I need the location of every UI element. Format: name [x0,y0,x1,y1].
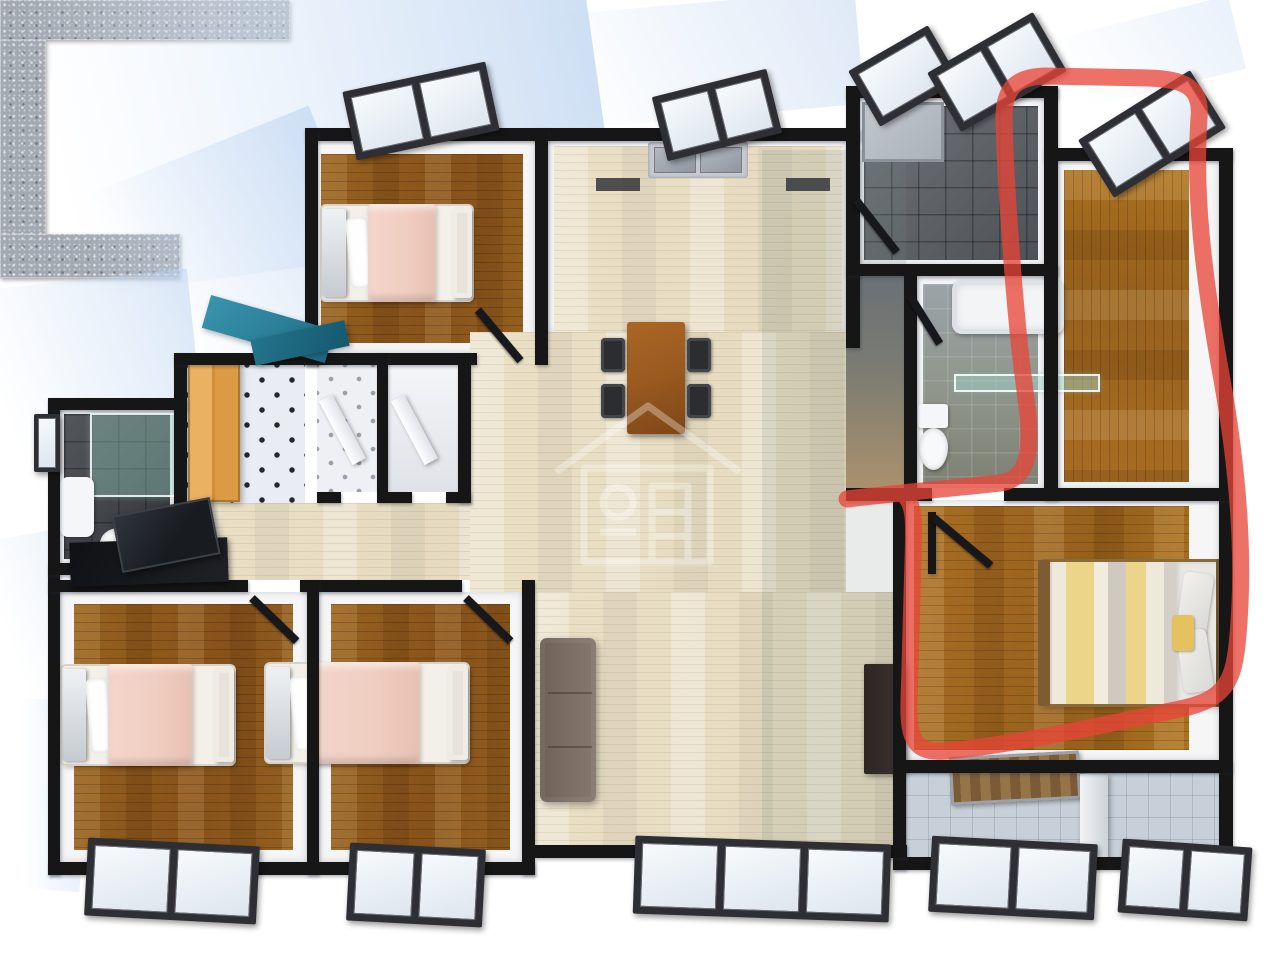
wall-segment [446,492,471,503]
wall-segment [846,86,860,348]
window-pane [935,843,1011,909]
shower-enclosure [90,413,176,497]
orange-wardrobe [188,362,240,502]
sofa-seam [548,692,592,694]
bed-blanket-pink [108,664,193,766]
dining-chair [687,384,711,418]
single-bed-bottom-middle [266,664,468,762]
dining-chair [601,338,625,372]
room-walk-in-wardrobe [1058,160,1219,488]
wall-segment [317,492,341,503]
window-bedroom-bottom-middle [346,842,486,927]
window-balcony-2 [1118,839,1253,922]
kitchen-counter-bottom-arm [0,234,180,278]
window-pane [806,849,884,916]
window-pane [714,77,774,139]
window-pane [91,845,170,913]
dining-chair [601,384,625,418]
balcony-bench [949,751,1081,806]
wall-segment [388,492,412,503]
bed-footboard [214,668,234,762]
bed-footboard [448,666,468,760]
window-pane [418,853,479,920]
window-pane [1186,850,1245,914]
wall-segment [1044,160,1058,500]
bed-headboard [322,209,346,297]
window-bathroom-left [34,414,60,472]
window-pane [1015,847,1091,913]
window-balcony-1 [928,836,1098,921]
bed-footboard [452,208,472,298]
floor-plan-render [0,0,1283,959]
counter-drawer-handles [596,178,640,191]
wall-segment [377,353,388,503]
wall-segment [535,128,548,365]
window-pane [419,70,492,138]
window-pane [1125,846,1184,910]
wall-segment [1004,488,1232,501]
window-bedroom-bottom-left [84,838,260,925]
window-pane [351,84,424,152]
closet-2-floor [388,365,458,492]
wall-segment [307,580,319,875]
master-bed [1042,562,1224,704]
window-pane [38,418,56,468]
window-pane [660,91,720,153]
bed-cushion-yellow [1172,615,1194,652]
pedestal-sink [60,477,94,537]
sofa [540,638,596,802]
bed-blanket-pink [368,204,436,302]
sofa-seam [548,746,592,748]
counter-drawer-handles [786,178,830,191]
bed-blanket-pink [312,662,420,764]
window-living-room [633,836,892,923]
wall-segment [305,353,477,365]
wall-segment [522,580,535,875]
window-pane [640,843,718,910]
toilet-tank [918,404,948,428]
wall-segment [300,580,462,592]
wall-segment [893,500,906,773]
bed-headboard [62,669,86,761]
bed-headboard [266,667,290,759]
double-bed-top-left [322,206,472,300]
kitchen-counter-top-arm [0,0,290,40]
single-bed-bottom-left [62,666,234,764]
dining-chair [687,338,711,372]
hallway-floor [187,503,470,580]
window-pane [353,850,414,917]
wall-segment [906,760,1232,773]
wall-segment [458,353,471,503]
bed-footboard [1038,560,1050,706]
window-pane [723,846,801,913]
window-pane [174,849,253,917]
wardrobe-wood-floor [1064,170,1189,482]
glass-shelf [954,374,1100,392]
dining-table [627,322,685,434]
kitchen-counter-left-arm [0,40,46,234]
wall-segment [48,398,187,410]
wall-segment [846,488,932,501]
wall-segment [846,264,1058,276]
